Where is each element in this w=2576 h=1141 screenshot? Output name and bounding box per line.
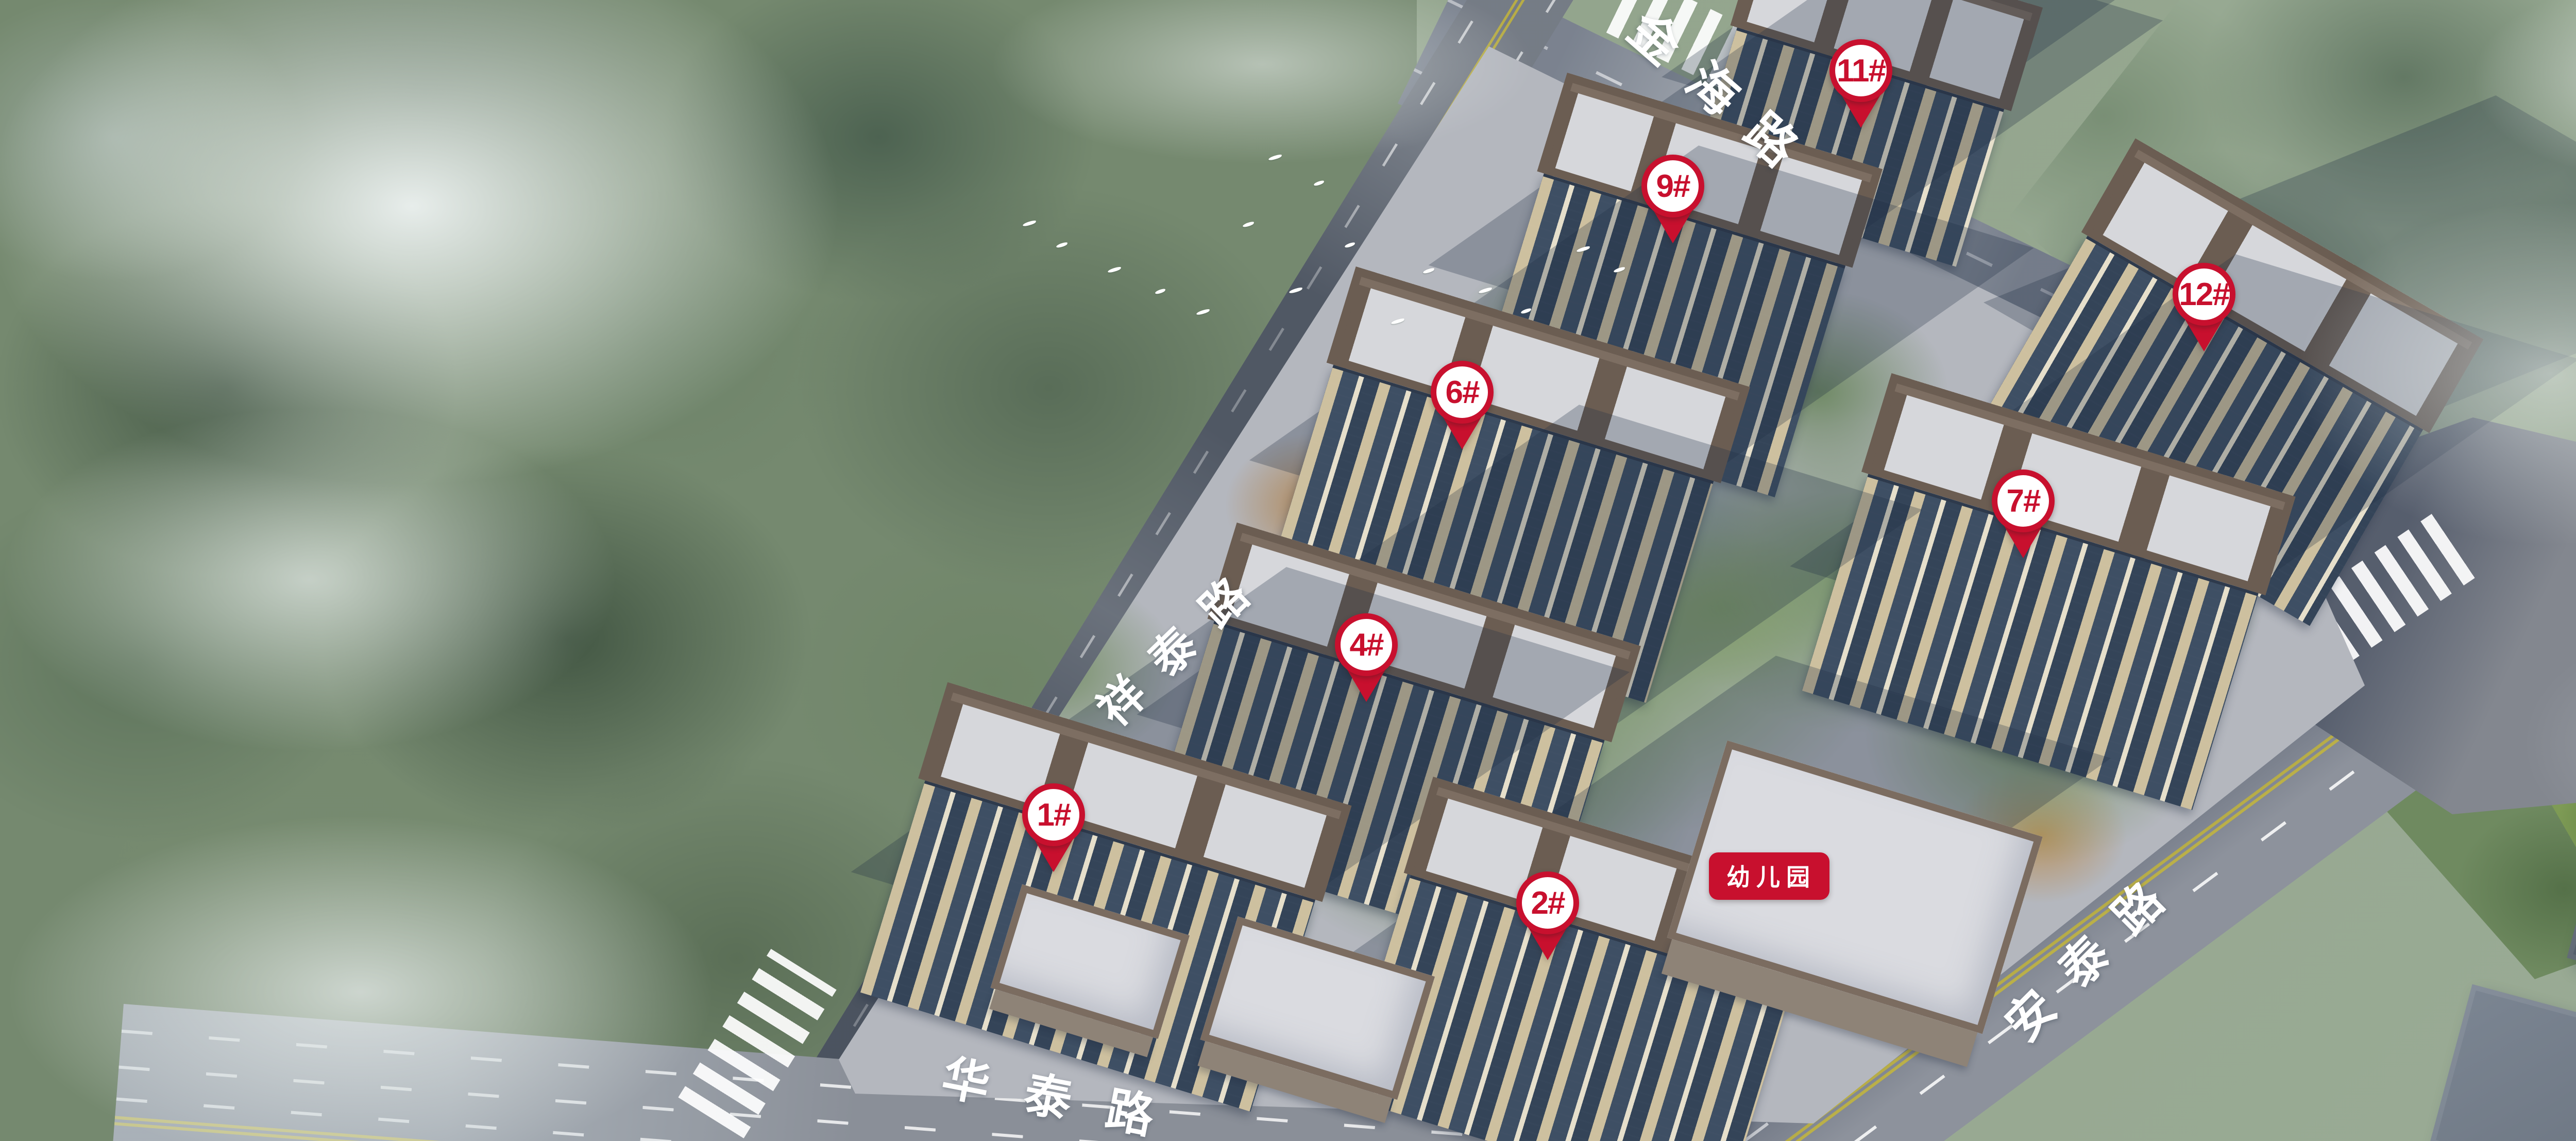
marker-label: 9# (1641, 155, 1704, 217)
building-marker-12[interactable]: 12# (2170, 263, 2238, 351)
marker-label: 7# (1992, 469, 2055, 532)
building-marker-2[interactable]: 2# (1514, 871, 1582, 960)
marker-label: 11# (1829, 39, 1892, 102)
marker-label: 6# (1431, 361, 1494, 424)
neighboring-building (2430, 984, 2576, 1141)
building-marker-9[interactable]: 9# (1639, 155, 1707, 243)
building-marker-11[interactable]: 11# (1827, 39, 1895, 128)
aerial-rendering: 1#2#4#6#7#9#11#12# 金海路祥泰路安泰路华泰路 幼儿园 鸟瞰图 (0, 0, 2576, 1141)
building-marker-7[interactable]: 7# (1989, 469, 2057, 558)
marker-label: 2# (1516, 871, 1579, 934)
marker-label: 4# (1335, 613, 1398, 676)
marker-label: 1# (1022, 783, 1085, 846)
building-marker-4[interactable]: 4# (1332, 613, 1400, 702)
building-marker-6[interactable]: 6# (1428, 361, 1496, 449)
kindergarten-badge: 幼儿园 (1709, 852, 1829, 900)
building-marker-1[interactable]: 1# (1020, 783, 1088, 872)
marker-label: 12# (2173, 263, 2235, 326)
